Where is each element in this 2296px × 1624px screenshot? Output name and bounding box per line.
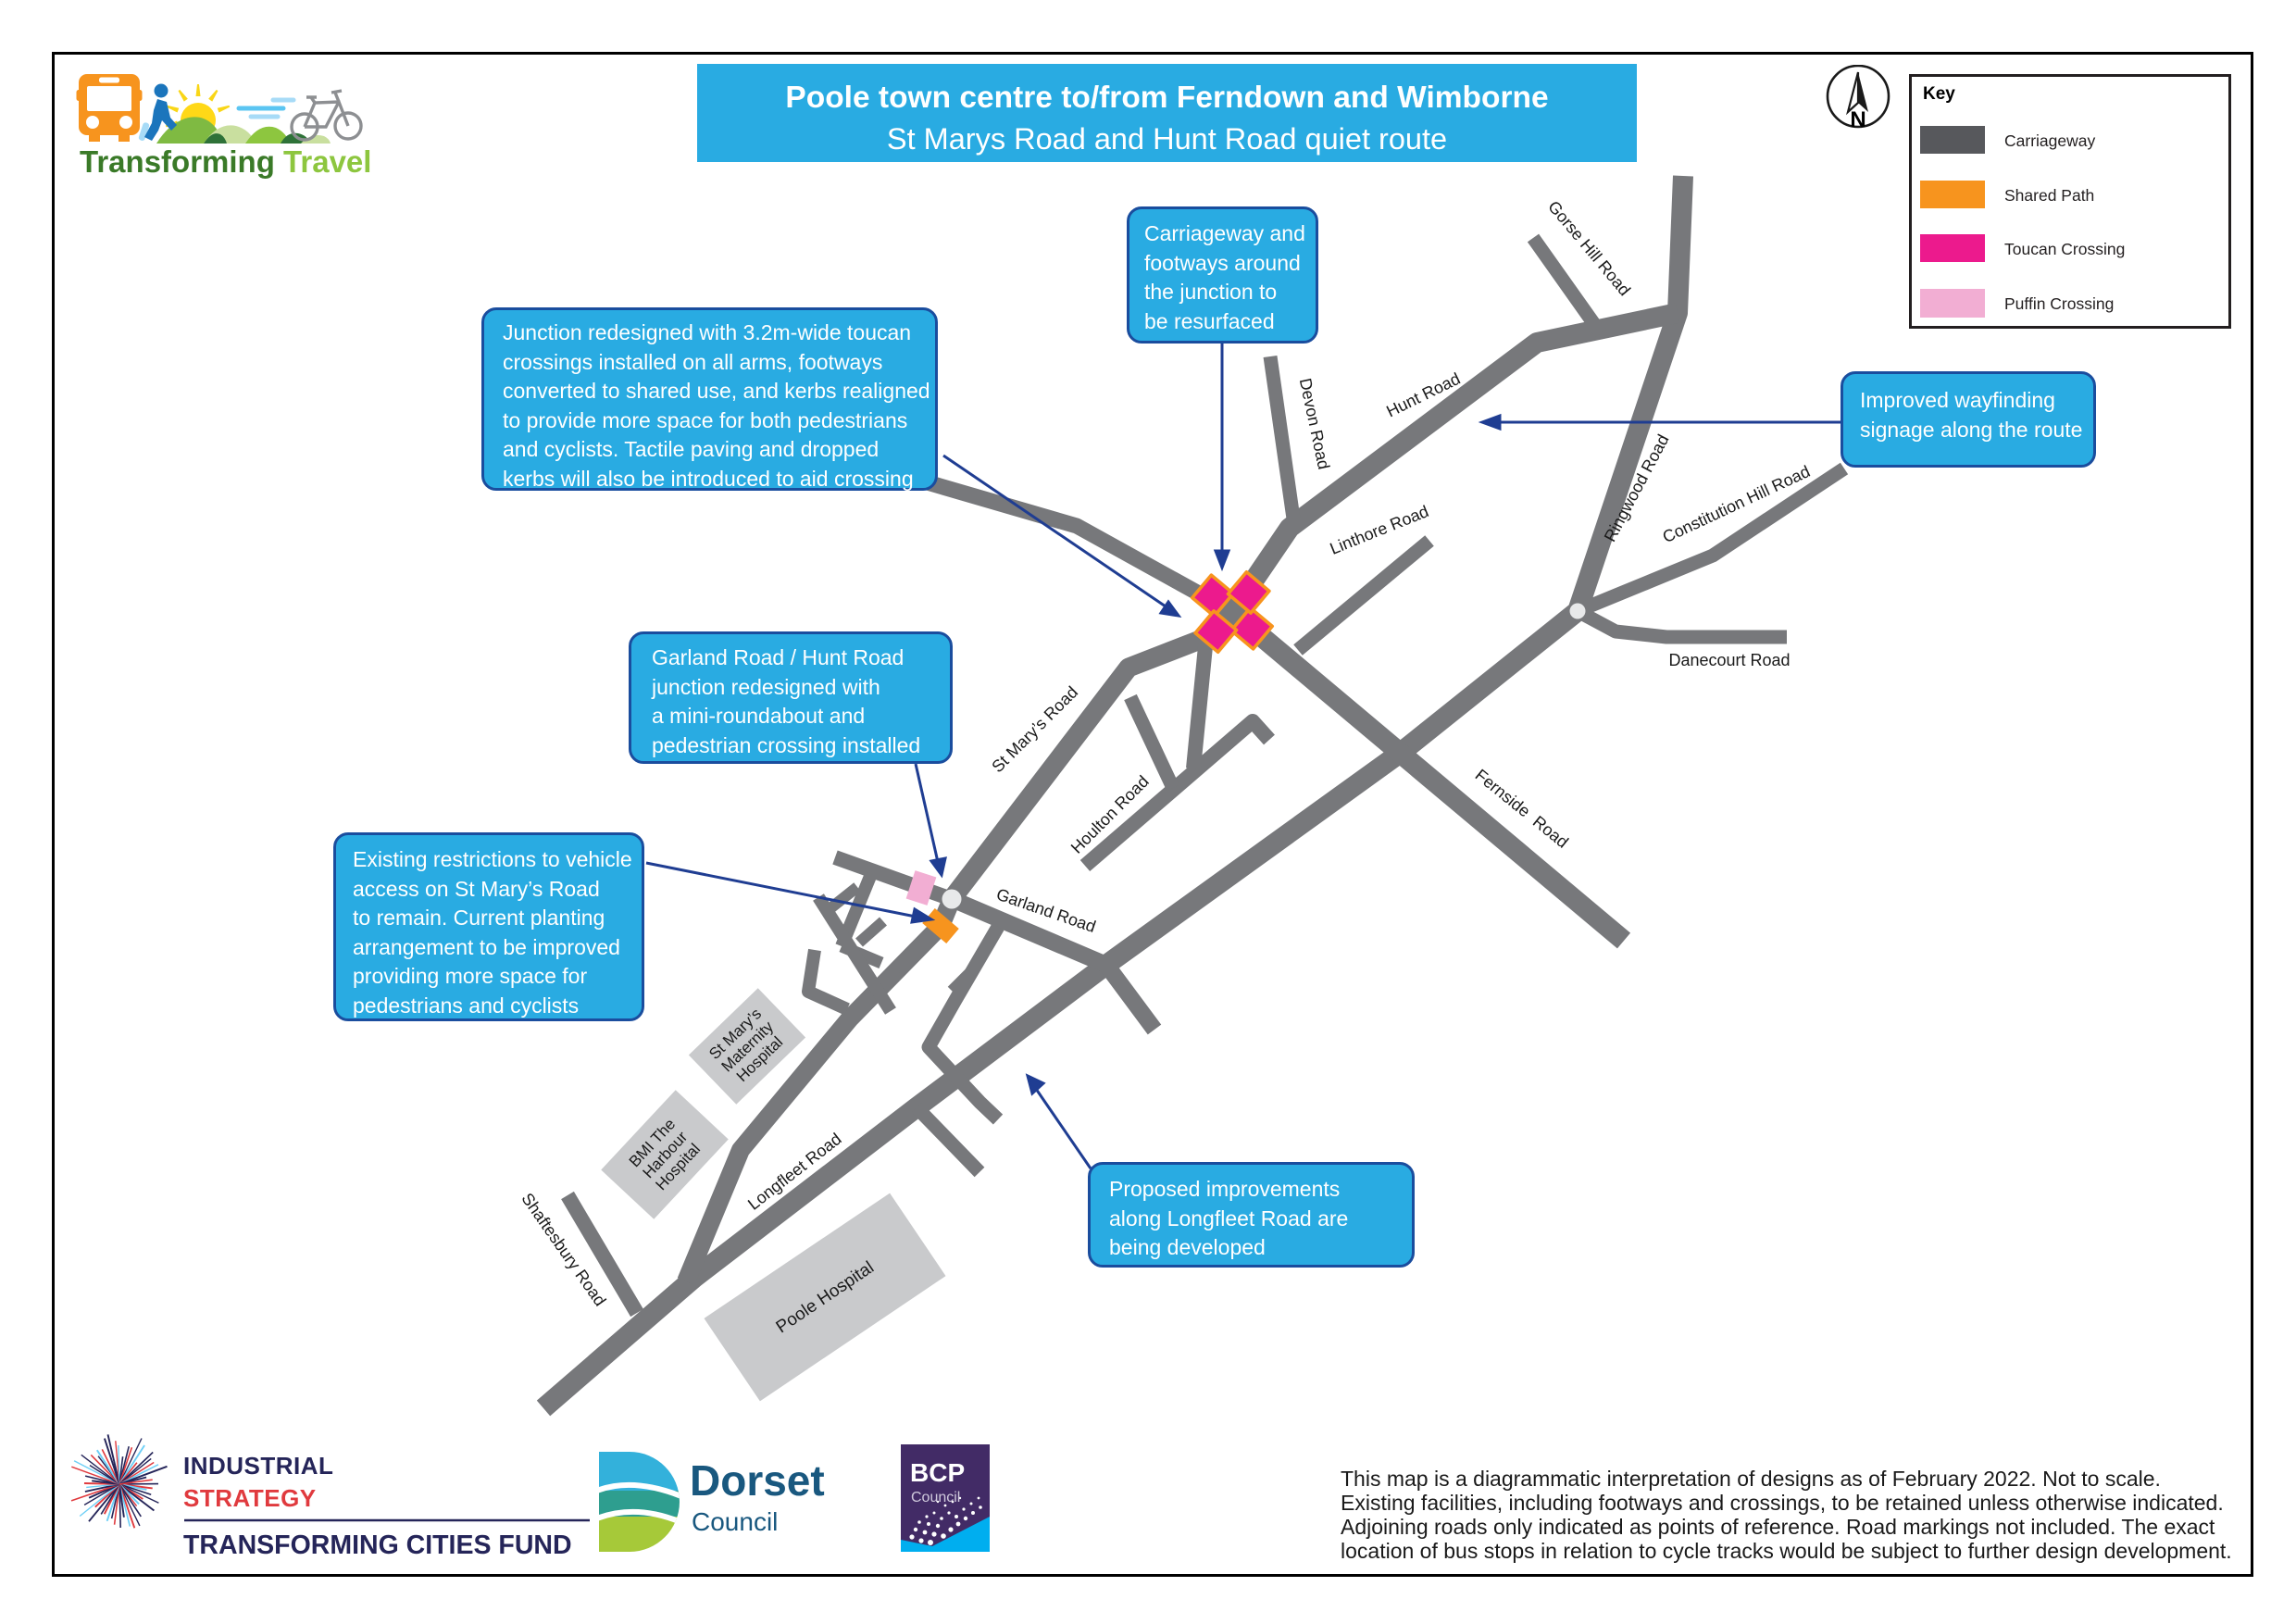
svg-text:Danecourt Road: Danecourt Road: [1668, 651, 1790, 669]
svg-text:STRATEGY: STRATEGY: [183, 1484, 317, 1512]
svg-text:Council: Council: [692, 1507, 778, 1536]
svg-text:N: N: [1850, 107, 1865, 132]
svg-text:BCP: BCP: [910, 1458, 965, 1487]
svg-text:INDUSTRIAL: INDUSTRIAL: [183, 1452, 333, 1480]
svg-text:TRANSFORMING CITIES FUND: TRANSFORMING CITIES FUND: [183, 1530, 572, 1560]
svg-text:Transforming Travel: Transforming Travel: [80, 144, 371, 179]
svg-text:Dorset: Dorset: [690, 1456, 825, 1505]
svg-text:Council: Council: [911, 1490, 960, 1505]
svg-text:Devon Road: Devon Road: [1296, 377, 1333, 471]
